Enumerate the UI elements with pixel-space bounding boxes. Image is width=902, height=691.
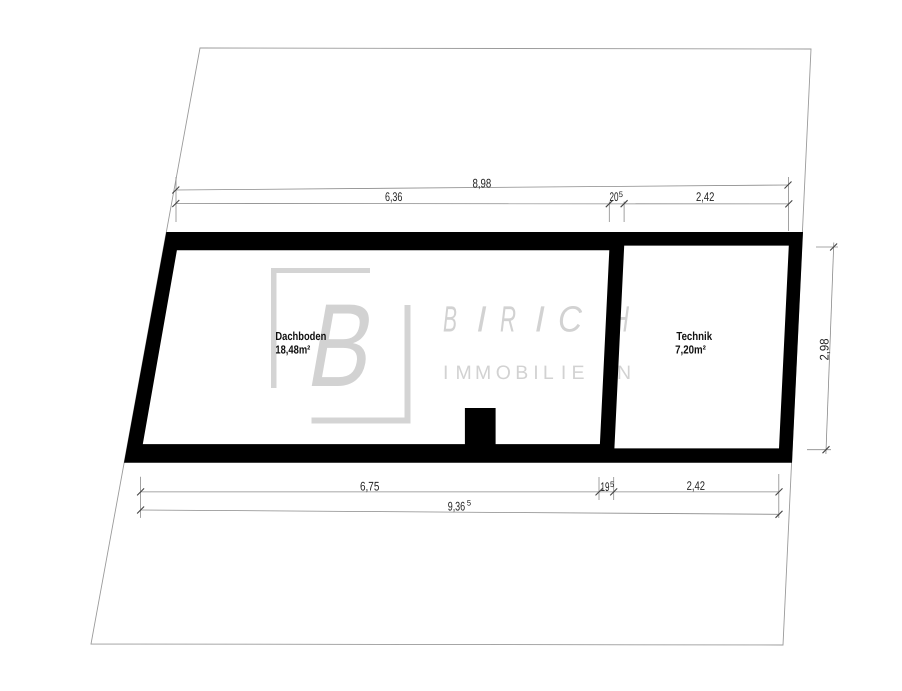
svg-text:E: E <box>572 362 585 384</box>
svg-text:20: 20 <box>610 190 619 204</box>
svg-text:6,36: 6,36 <box>385 190 403 204</box>
svg-text:N: N <box>617 362 631 384</box>
svg-text:19: 19 <box>601 480 610 494</box>
svg-text:B: B <box>515 362 528 384</box>
svg-text:R: R <box>500 298 516 339</box>
svg-text:Dachboden: Dachboden <box>275 330 326 343</box>
svg-text:5: 5 <box>610 480 615 489</box>
svg-text:6,75: 6,75 <box>360 480 379 494</box>
svg-text:O: O <box>496 362 511 384</box>
svg-text:2,42: 2,42 <box>687 479 705 493</box>
svg-text:Technik: Technik <box>676 330 712 343</box>
svg-text:B: B <box>443 298 457 339</box>
svg-text:2,42: 2,42 <box>696 190 714 204</box>
svg-text:7,20m²: 7,20m² <box>675 344 706 357</box>
svg-text:8,98: 8,98 <box>473 177 492 191</box>
svg-text:M: M <box>475 362 491 384</box>
svg-text:C: C <box>558 298 583 339</box>
svg-text:I: I <box>535 298 545 339</box>
svg-text:I: I <box>477 298 487 339</box>
svg-text:L: L <box>543 362 554 384</box>
svg-text:M: M <box>456 362 472 384</box>
svg-text:2,98: 2,98 <box>818 338 832 360</box>
svg-text:9,36: 9,36 <box>448 500 466 514</box>
svg-text:5: 5 <box>619 190 624 199</box>
svg-text:I: I <box>561 362 566 384</box>
svg-text:5: 5 <box>467 499 472 508</box>
svg-text:18,48m²: 18,48m² <box>275 344 310 357</box>
svg-text:I: I <box>443 362 448 384</box>
svg-text:I: I <box>533 362 538 384</box>
